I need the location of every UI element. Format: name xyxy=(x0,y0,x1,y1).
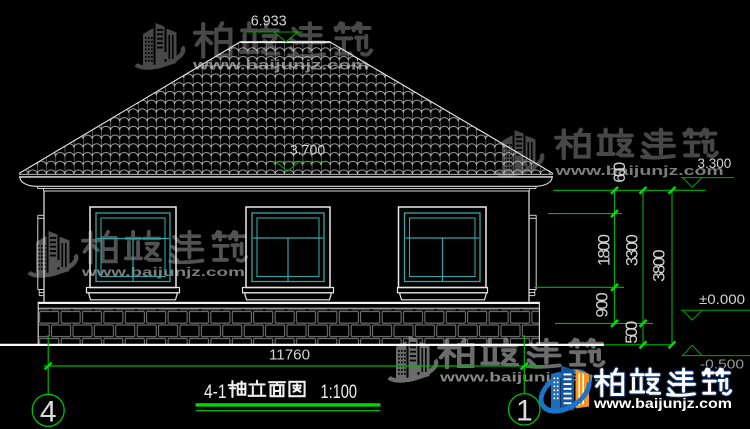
svg-text:3.700: 3.700 xyxy=(290,142,326,158)
svg-text:3800: 3800 xyxy=(650,249,669,282)
svg-text:1:100: 1:100 xyxy=(321,382,358,403)
svg-text:11760: 11760 xyxy=(269,348,310,364)
svg-text:3.300: 3.300 xyxy=(698,156,732,171)
svg-text:500: 500 xyxy=(622,321,641,344)
svg-text:4: 4 xyxy=(40,396,57,429)
svg-text:1800: 1800 xyxy=(595,234,614,266)
svg-text:900: 900 xyxy=(593,292,612,317)
svg-text:3300: 3300 xyxy=(623,234,642,266)
svg-text:4-1: 4-1 xyxy=(204,382,227,403)
svg-text:600: 600 xyxy=(610,162,629,183)
svg-text:1: 1 xyxy=(516,395,533,428)
svg-text:www.baijunjz.com: www.baijunjz.com xyxy=(593,395,732,411)
svg-text:6.933: 6.933 xyxy=(251,13,287,29)
svg-text:±0.000: ±0.000 xyxy=(699,292,745,307)
